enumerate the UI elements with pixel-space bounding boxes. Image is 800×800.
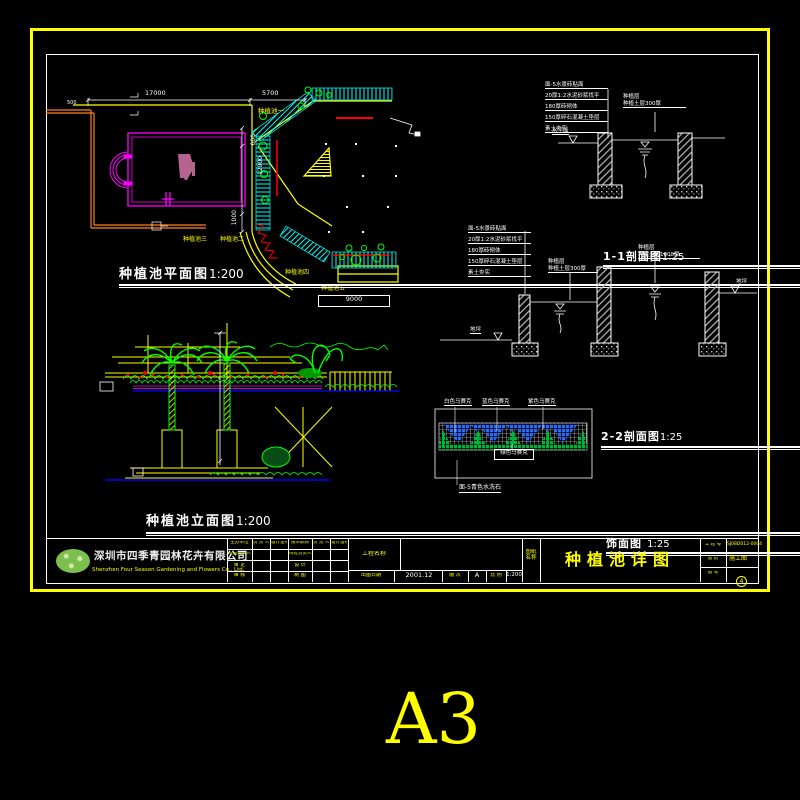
plan-red-lines xyxy=(256,118,390,258)
plan-dim-5700: 5700 xyxy=(262,90,279,97)
facing-label-white-mosaic: 白色马赛克 xyxy=(444,399,472,406)
plan-dim-600: 600 xyxy=(250,134,257,145)
tb-grid-line xyxy=(348,570,522,571)
company-name-en: Shenzhen Four Season Gardening and Flowe… xyxy=(92,567,245,573)
tb-header-tech: 技术职称 xyxy=(289,541,311,546)
plan-title-text: 种植池平面图 xyxy=(119,267,209,282)
tb-grid-line xyxy=(394,570,395,582)
facing-label-green-mosaic: 绿色马赛克 xyxy=(494,449,534,460)
s22-soil1-label-1: 种植层 xyxy=(548,259,565,265)
tb-date-value: 2001.12 xyxy=(397,572,441,579)
facing-label-blue-mosaic: 蓝色马赛克 xyxy=(482,399,510,406)
tb-sheet-name-label: 图纸名称 xyxy=(524,549,538,561)
facing-label-green-mosaic-text: 绿色马赛克 xyxy=(500,450,528,456)
plan-dim-500: 500 xyxy=(67,101,77,107)
plan-sketch-flag xyxy=(390,118,420,136)
tb-header-cert2: 设计证号 xyxy=(331,541,347,546)
tb-design-label: 设 计 xyxy=(289,563,311,569)
s11-soil-label-1: 种植层 xyxy=(623,94,640,100)
plan-dim-9000: 9000 xyxy=(318,295,390,307)
tb-header-person2: 负 责 人 xyxy=(313,541,329,546)
elevation-title-text: 种植池立面图 xyxy=(146,514,236,529)
facing-mosaic-band xyxy=(439,423,587,450)
company-name-cn: 深圳市四季青园林花卉有限公司 xyxy=(94,551,248,563)
tb-grid-line xyxy=(700,567,758,568)
titleblock-top-border xyxy=(46,538,758,539)
s22-callout-3: 180厚砖砌体 xyxy=(468,248,531,255)
section-2-2-title: 2-2剖面图1:25 xyxy=(601,426,800,448)
drawing-number-circle: 4 xyxy=(736,576,747,587)
company-logo xyxy=(56,549,90,573)
tb-type-label: 图 别 xyxy=(701,557,725,562)
facing-label-base: 面-5青色水洗石 xyxy=(459,485,501,493)
s11-walls xyxy=(590,133,702,198)
plan-dim-1000: 1000 xyxy=(231,210,238,225)
tb-divider xyxy=(400,538,401,570)
s22-soil2-label-2: 种植土层1000厚 xyxy=(638,252,700,259)
tb-divider xyxy=(522,538,523,582)
s22-title-text: 2-2剖面图 xyxy=(601,430,660,443)
elev-palm-trees xyxy=(142,342,290,467)
elev-magenta-blue-lines xyxy=(105,386,400,480)
plan-dim-12900: 12900 xyxy=(257,156,264,175)
sheet-title: 种植池详图 xyxy=(540,551,700,569)
tb-project-name-label: 工程名称 xyxy=(352,551,396,558)
plan-label-pool3: 种植池三 xyxy=(183,237,207,244)
s11-soil-label-2: 种植土层300厚 xyxy=(623,101,686,108)
tb-approve-label: 审 定 xyxy=(228,563,251,569)
tb-date-label: 出图日期 xyxy=(349,573,393,579)
tb-rev-value: A xyxy=(469,572,485,579)
tb-type-value: 施工图 xyxy=(729,556,747,563)
s22-ground-left-label: 地坪 xyxy=(470,327,481,334)
plan-dim-17000: 17000 xyxy=(145,90,166,97)
plan-title-scale: 1:200 xyxy=(209,267,244,281)
s22-soil1-label-2: 种植土层300厚 xyxy=(548,266,598,273)
s22-callout-1: 面-5水景砖贴面 xyxy=(468,226,531,233)
tb-scale-label: 比 例 xyxy=(487,573,505,579)
tb-pno-label: 工 程 号 xyxy=(701,543,725,548)
tb-no-label: 图 号 xyxy=(701,571,725,576)
cad-sheet-screenshot: 17000 5700 500 600 12900 1000 种植池一 种植池三 … xyxy=(0,0,800,800)
elevation-title: 种植池立面图1:200 xyxy=(146,511,800,533)
tb-scale-value: 1:200 xyxy=(506,572,522,578)
tb-no-value: 4 xyxy=(736,569,747,587)
plan-label-pool2: 种植池二 xyxy=(220,237,244,244)
tb-header-cert: 设计证号 xyxy=(271,541,287,546)
tb-project-lead: 项目负责人 xyxy=(228,552,251,557)
s11-callout-4: 150厚碎石混凝土垫层 xyxy=(545,115,608,122)
s11-callout-3: 180厚砖砌体 xyxy=(545,104,608,111)
tb-greening-lead: 绿化负责人 xyxy=(289,552,311,557)
s11-callout-1: 面-5水景砖贴面 xyxy=(545,82,608,89)
plan-white-marks xyxy=(323,143,397,233)
tb-header-unit: 主办单位 xyxy=(228,541,251,546)
facing-title-scale: 1:25 xyxy=(647,539,669,550)
paper-size-label: A3 xyxy=(386,678,481,760)
tb-grid-line xyxy=(227,571,348,572)
tb-header-person: 负 责 人 xyxy=(253,541,269,546)
s22-walls xyxy=(512,267,726,356)
plan-building xyxy=(110,133,245,206)
s22-callout-5: 素土夯实 xyxy=(468,270,531,277)
elevation-drawing xyxy=(90,315,420,515)
plan-dim-9000-value: 9000 xyxy=(346,295,363,303)
tb-rev-label: 版 次 xyxy=(443,573,467,579)
s22-callout-2: 20厚1:2水泥砂浆找平 xyxy=(468,237,531,244)
tb-pno-value: SJ08D012-0004 xyxy=(727,543,758,548)
tb-draft-label: 制 图 xyxy=(289,573,311,579)
tb-review-label: 审 核 xyxy=(228,573,251,579)
s22-callout-4: 150厚碎石混凝土垫层 xyxy=(468,259,531,266)
section-2-2-drawing xyxy=(440,220,760,385)
s11-level-label: 水平面 xyxy=(552,128,569,135)
s22-ground-right-label: 地坪 xyxy=(736,279,747,286)
tb-grid-line xyxy=(700,553,758,554)
facing-label-purple-mosaic: 紫色马赛克 xyxy=(528,399,556,406)
s22-title-scale: 1:25 xyxy=(660,432,682,443)
s22-soil2-label-1: 种植层 xyxy=(638,245,655,251)
plan-label-pool1: 种植池一 xyxy=(258,108,284,115)
plan-furniture xyxy=(178,154,195,180)
s11-callout-2: 20厚1:2水泥砂浆找平 xyxy=(545,93,608,100)
elevation-title-scale: 1:200 xyxy=(236,514,271,528)
